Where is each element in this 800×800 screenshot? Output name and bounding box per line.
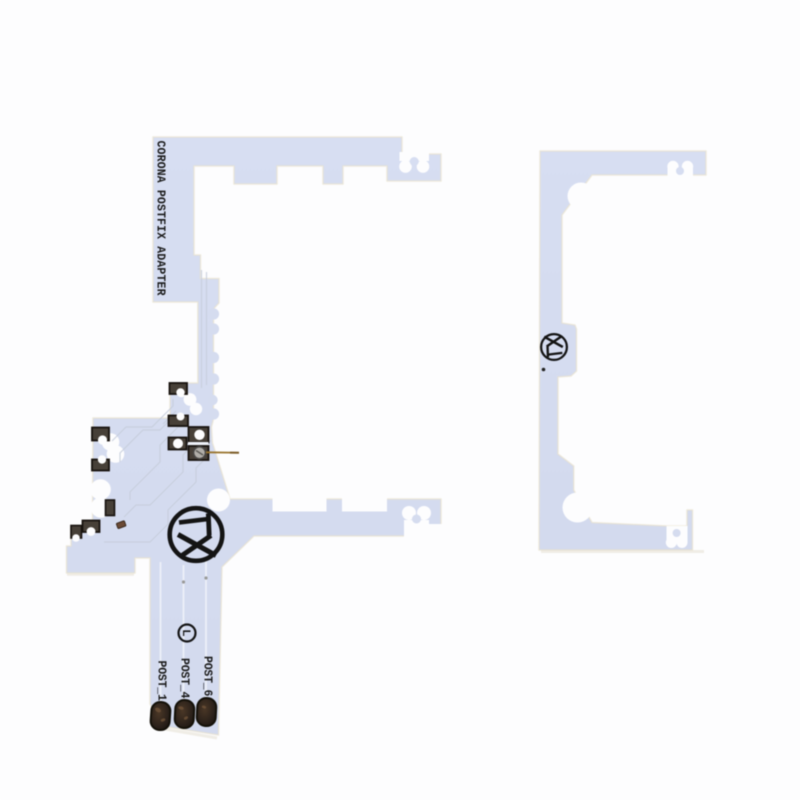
svg-text:POST_6: POST_6 xyxy=(201,656,214,697)
svg-text:CORONA POSTFIX ADAPTER: CORONA POSTFIX ADAPTER xyxy=(154,141,167,296)
svg-text:POST_1: POST_1 xyxy=(155,661,168,702)
svg-text:L: L xyxy=(180,630,192,637)
svg-text:POST_4: POST_4 xyxy=(178,658,191,699)
